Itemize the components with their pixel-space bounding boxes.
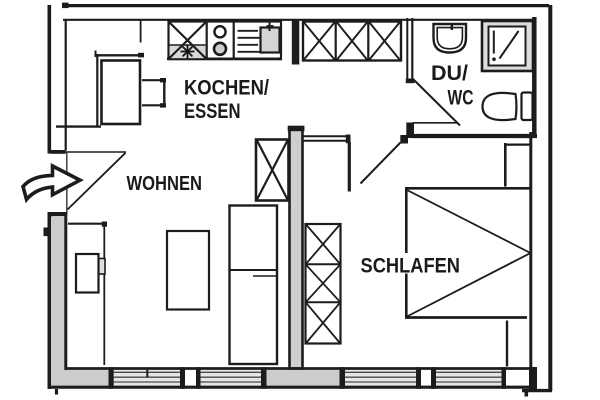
svg-text:WOHNEN: WOHNEN (127, 172, 203, 195)
svg-text:WC: WC (448, 87, 474, 110)
svg-text:KOCHEN/: KOCHEN/ (184, 77, 269, 100)
svg-text:DU/: DU/ (431, 62, 468, 85)
svg-text:SCHLAFEN: SCHLAFEN (361, 254, 461, 277)
svg-text:ESSEN: ESSEN (184, 100, 241, 123)
